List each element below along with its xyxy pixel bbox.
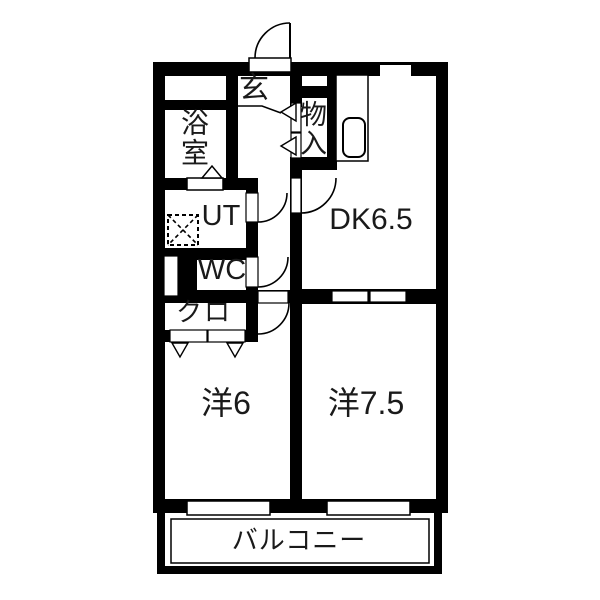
- wall-bath-genkan-divider: [226, 62, 238, 190]
- room6-door: [258, 291, 289, 334]
- genkan-step-line: [238, 106, 281, 113]
- closet-door-leaf-right: [208, 330, 245, 342]
- room75-balcony-window: [327, 501, 410, 515]
- kitchen-sink-icon: [343, 118, 365, 157]
- label-closet: クロ: [176, 299, 232, 325]
- label-bath: 浴室: [179, 108, 207, 168]
- sliding-door-panel-left: [332, 291, 368, 302]
- dk-window: [380, 65, 411, 76]
- utility-door: [246, 193, 287, 222]
- bath-door: [187, 166, 223, 190]
- entrance-door-arc-icon: [255, 23, 290, 58]
- pipe-space: [164, 256, 178, 296]
- entrance-door: [249, 23, 291, 72]
- wall-right: [436, 62, 448, 513]
- toilet-door-leaf: [246, 257, 258, 287]
- wall-room6-room75-divider: [290, 291, 302, 513]
- label-genkan: 玄: [239, 74, 269, 104]
- label-utility: UT: [202, 202, 241, 231]
- washer-pan-icon: [168, 215, 198, 245]
- toilet-door-arc-icon: [258, 257, 288, 287]
- wall-left: [153, 62, 165, 513]
- label-dining-kitchen: DK6.5: [329, 205, 412, 235]
- storage-door-triangle-upper-icon: [281, 103, 296, 121]
- floorplan: 玄 浴室 UT WC クロ 物入 DK6.5 洋6 洋7.5 バルコニー: [0, 0, 600, 600]
- room6-balcony-window: [187, 501, 270, 515]
- bath-door-sill: [187, 178, 223, 190]
- dk-door-leaf: [291, 178, 301, 213]
- balcony-wall-left: [157, 513, 165, 574]
- label-western-room-7-5: 洋7.5: [328, 387, 405, 419]
- closet-door-triangle-right-icon: [227, 343, 243, 357]
- room6-door-arc-icon: [258, 303, 289, 334]
- closet-door-triangle-left-icon: [172, 343, 188, 357]
- room6-door-leaf: [258, 291, 288, 303]
- kitchen-counter: [336, 75, 368, 161]
- closet-doors: [170, 330, 245, 357]
- label-balcony: バルコニー: [232, 527, 366, 553]
- storage-door-triangle-lower-icon: [281, 137, 296, 155]
- label-storage: 物入: [297, 100, 324, 158]
- balcony-wall-bottom: [157, 566, 442, 574]
- label-western-room-6: 洋6: [201, 387, 251, 419]
- floorplan-drawing: [0, 0, 600, 600]
- utility-door-leaf: [246, 193, 258, 222]
- balcony-wall-right: [434, 513, 442, 574]
- label-toilet: WC: [198, 256, 246, 285]
- utility-door-arc-icon: [258, 193, 287, 222]
- sliding-door-panel-right: [370, 291, 406, 302]
- entrance-door-sill: [249, 58, 291, 72]
- closet-door-leaf-left: [170, 330, 207, 342]
